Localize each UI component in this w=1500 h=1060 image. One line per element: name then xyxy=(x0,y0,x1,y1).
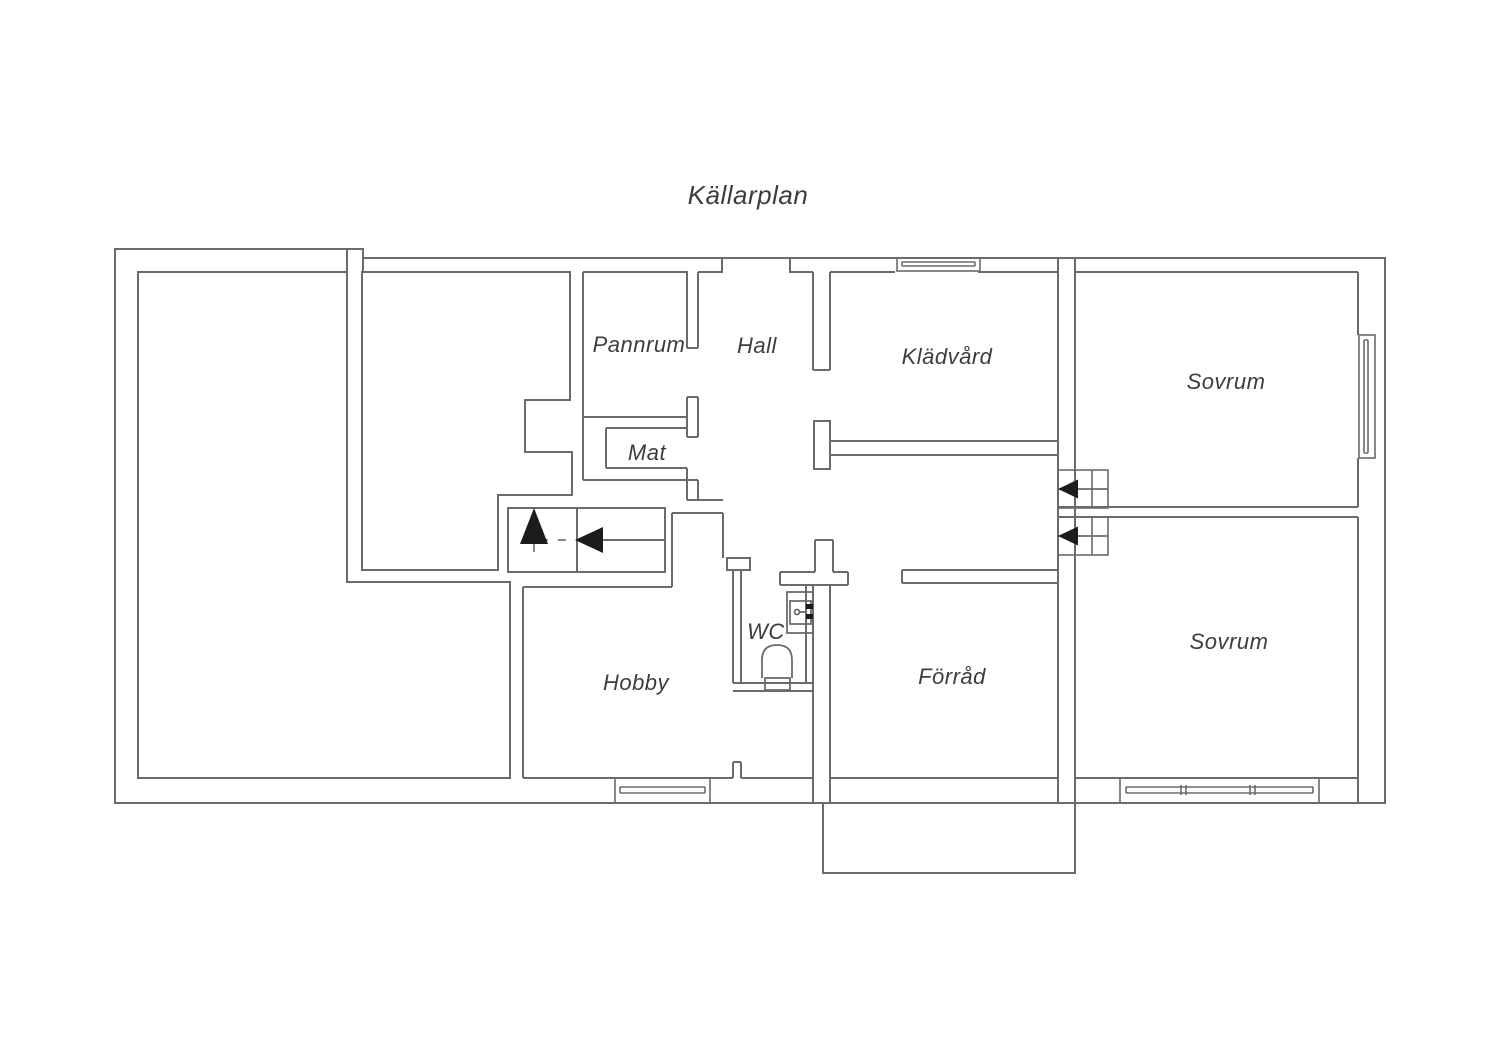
hall-south-walls xyxy=(672,500,723,587)
window-icon-right xyxy=(1359,335,1375,458)
main-staircase xyxy=(508,508,665,572)
room-label-sovrum-top: Sovrum xyxy=(1187,369,1266,394)
room-left-outline xyxy=(138,249,510,778)
room-label-wc: WC xyxy=(747,619,785,644)
floor-plan-page: Källarplan Pannrum Hall Klädvård Sovrum … xyxy=(0,0,1500,1060)
room-label-pannrum: Pannrum xyxy=(593,332,686,357)
bottom-interior-wall xyxy=(523,778,1358,803)
room-label-hall: Hall xyxy=(737,333,778,358)
room-label-sovrum-bottom: Sovrum xyxy=(1190,629,1269,654)
wc-left-wall xyxy=(727,558,750,778)
floor-plan: Källarplan Pannrum Hall Klädvård Sovrum … xyxy=(0,0,1500,1060)
stairs-left-arrow-icon xyxy=(575,527,603,553)
hall-kladvard-wall xyxy=(813,272,830,469)
steps-left-arrow-icon xyxy=(1058,480,1078,499)
sink-icon xyxy=(787,592,813,633)
room-label-mat: Mat xyxy=(628,440,667,465)
page-title: Källarplan xyxy=(688,180,809,210)
window-icon-bottom-right xyxy=(1120,778,1319,803)
wc-forrad-wall xyxy=(780,540,848,585)
windows xyxy=(615,258,1375,803)
room-middle-outline xyxy=(362,258,572,570)
stairs-up-arrow-icon xyxy=(520,508,548,544)
room-label-forrad: Förråd xyxy=(918,664,986,689)
mini-stairs-lower xyxy=(1058,517,1108,555)
window-icon-top xyxy=(897,258,980,271)
mini-stairs-upper xyxy=(1058,470,1108,508)
window-icon-bottom-left xyxy=(615,778,710,803)
pannrum-hall-wall xyxy=(687,272,698,437)
room-label-kladvard: Klädvård xyxy=(902,344,993,369)
steps-left-arrow-icon xyxy=(1058,527,1078,546)
porch-outline xyxy=(823,803,1075,873)
room-label-hobby: Hobby xyxy=(603,670,671,695)
